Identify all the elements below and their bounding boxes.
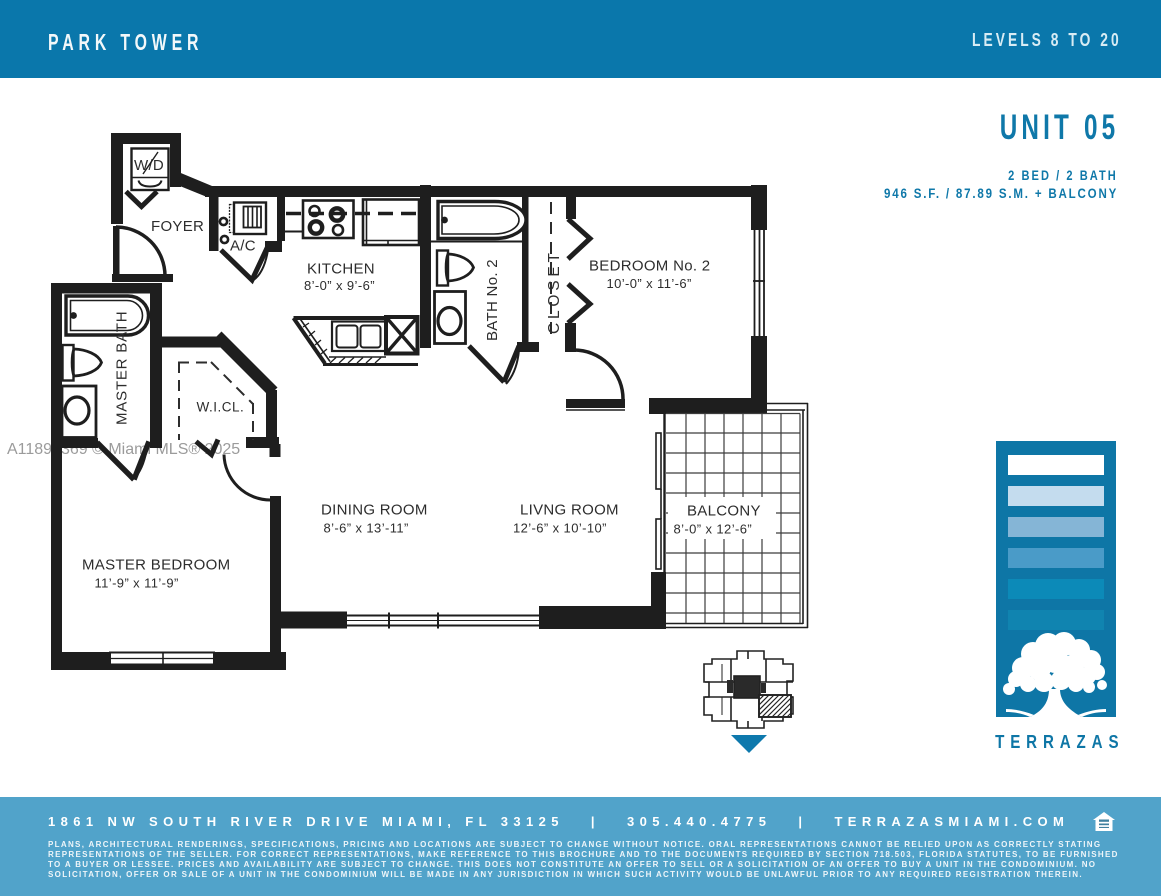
svg-text:W/D: W/D: [134, 157, 164, 174]
svg-text:MASTER BEDROOM: MASTER BEDROOM: [82, 557, 230, 574]
svg-text:12’-6” x 10’-10”: 12’-6” x 10’-10”: [513, 521, 607, 536]
svg-text:8’-0” x 9’-6”: 8’-0” x 9’-6”: [304, 278, 375, 293]
svg-text:8’-6” x 13’-11”: 8’-6” x 13’-11”: [324, 521, 409, 536]
svg-text:A/C: A/C: [230, 238, 256, 255]
svg-text:CLOSET: CLOSET: [546, 249, 563, 334]
svg-text:MASTER BATH: MASTER BATH: [114, 311, 131, 425]
svg-text:BEDROOM No. 2: BEDROOM No. 2: [589, 258, 710, 275]
svg-text:KITCHEN: KITCHEN: [307, 261, 375, 278]
svg-text:BALCONY: BALCONY: [687, 503, 761, 520]
svg-text:BATH No. 2: BATH No. 2: [484, 259, 501, 341]
svg-text:FOYER: FOYER: [151, 218, 204, 235]
svg-text:DINING ROOM: DINING ROOM: [321, 502, 428, 519]
svg-text:11’-9” x 11’-9”: 11’-9” x 11’-9”: [95, 576, 179, 591]
svg-text:W.I.CL.: W.I.CL.: [197, 400, 245, 415]
svg-text:8’-0” x 12’-6”: 8’-0” x 12’-6”: [674, 522, 753, 537]
svg-text:LIVNG ROOM: LIVNG ROOM: [520, 502, 619, 519]
svg-text:10’-0” x 11’-6”: 10’-0” x 11’-6”: [607, 276, 692, 291]
